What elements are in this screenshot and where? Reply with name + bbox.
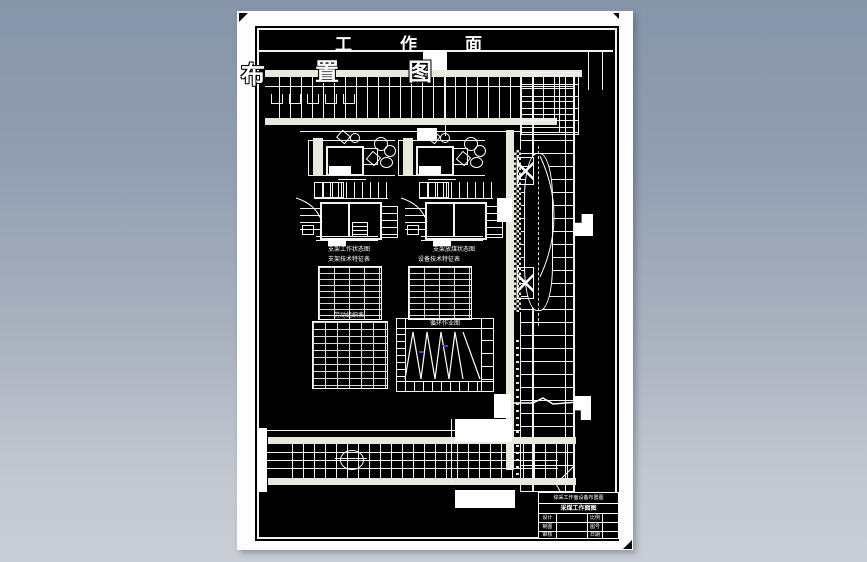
title-block-field-check: 审核 [539, 532, 557, 539]
shearer-drum-top [517, 157, 534, 185]
title-block-field-blank [603, 523, 618, 531]
crossing-line-2 [602, 50, 603, 90]
fold-mark-top-right [613, 13, 619, 19]
title-block-line2: 采煤工作面图 [539, 504, 618, 513]
support-ladder-mark [352, 222, 368, 236]
labor-table-title: 劳动组织表 [312, 312, 386, 320]
lower-conveyor-drive-axis [335, 458, 367, 459]
tab-block-face-lower [494, 394, 511, 418]
title-block: 综采工作面设备布置图 采煤工作面图 设计 比例 制图 图号 [538, 492, 619, 539]
rock-debris [474, 145, 486, 157]
tab-block-bottom-frame [455, 490, 515, 508]
lower-conveyor-rail-bottom [268, 478, 576, 485]
rail-shoe [271, 94, 283, 104]
shearer-drum-bottom [517, 267, 534, 299]
cycle-chart-blue-mark [443, 345, 448, 347]
title-block-field-design: 设计 [539, 514, 557, 522]
support-caption-left: 支架工作状态图 [300, 246, 398, 254]
overlay-char-tu: 图 [408, 52, 432, 87]
tab-block-mid-right [497, 198, 512, 222]
crossing-line-1 [588, 50, 589, 90]
spec-table-right-title: 设备技术特征表 [395, 256, 483, 264]
title-block-field-blank [557, 523, 588, 531]
banner-char-3: 面 [465, 30, 482, 55]
tab-block-lower-conveyor [455, 419, 512, 442]
spec-table-left-title: 支架技术特征表 [305, 256, 393, 264]
title-block-field-blank [603, 514, 618, 522]
shearer-cable-arc [538, 154, 570, 279]
fold-mark-top-left [239, 13, 248, 22]
cycle-chart-legend-rows [481, 328, 493, 381]
rail-shoe [307, 94, 319, 104]
title-block-field-blank [603, 532, 618, 539]
support-front-view-right: 支架放煤状态图 [405, 180, 503, 254]
lower-conveyor-centerline [451, 419, 452, 485]
rail-shoe [343, 94, 355, 104]
rock-debris [470, 157, 483, 168]
title-block-field-blank [557, 532, 588, 539]
lower-conveyor-drive-circle [340, 450, 364, 470]
title-block-field-blank [557, 514, 588, 522]
support-caption-right: 支架放煤状态图 [405, 246, 503, 254]
lower-conveyor-rail-top [268, 437, 576, 444]
upper-rib-line [300, 131, 520, 132]
title-block-field-date: 日期 [588, 532, 603, 539]
lower-conveyor-line-3 [258, 468, 558, 469]
title-banner: 工 作 面 [257, 28, 613, 52]
support-front-view-left: 支架工作状态图 [300, 180, 398, 254]
overlay-char-bu: 布 [241, 55, 265, 90]
title-block-field-draft: 制图 [539, 523, 557, 531]
labor-table [312, 321, 388, 389]
title-block-field-scale: 比例 [588, 514, 603, 522]
tab-block-support-top [417, 128, 437, 141]
cycle-chart-axis-ticks [405, 381, 481, 391]
drawing-sheet: 工 作 面 [237, 11, 633, 550]
overlay-char-zhi: 置 [315, 52, 339, 87]
rock-debris [384, 145, 396, 157]
rail-shoe [289, 94, 301, 104]
title-block-line1: 综采工作面设备布置图 [539, 493, 618, 503]
rock-debris [380, 157, 393, 168]
lower-conveyor-hatch [292, 444, 572, 478]
rail-shoe [325, 94, 337, 104]
cycle-chart: 循环作业图 [396, 318, 494, 392]
rock-debris [350, 133, 360, 143]
upper-conveyor-rail-bottom [265, 118, 557, 125]
lower-conveyor-line-2 [258, 460, 558, 461]
rock-debris [440, 133, 450, 143]
lower-conveyor-end-block [258, 428, 267, 492]
cycle-chart-row-labels [397, 328, 405, 381]
drawing-field: 工 作 面 [255, 26, 619, 541]
face-conveyor-inner-line [565, 75, 566, 492]
cycle-chart-blue-mark [419, 351, 424, 353]
cad-preview-stage: 工 作 面 [0, 0, 867, 562]
cycle-chart-waves [405, 329, 481, 381]
cycle-chart-title: 循环作业图 [397, 320, 493, 328]
lower-conveyor-line-1 [258, 452, 558, 453]
title-block-field-number: 图号 [588, 523, 603, 531]
fold-mark-bottom-right [623, 540, 632, 549]
spec-table-right [408, 266, 472, 320]
